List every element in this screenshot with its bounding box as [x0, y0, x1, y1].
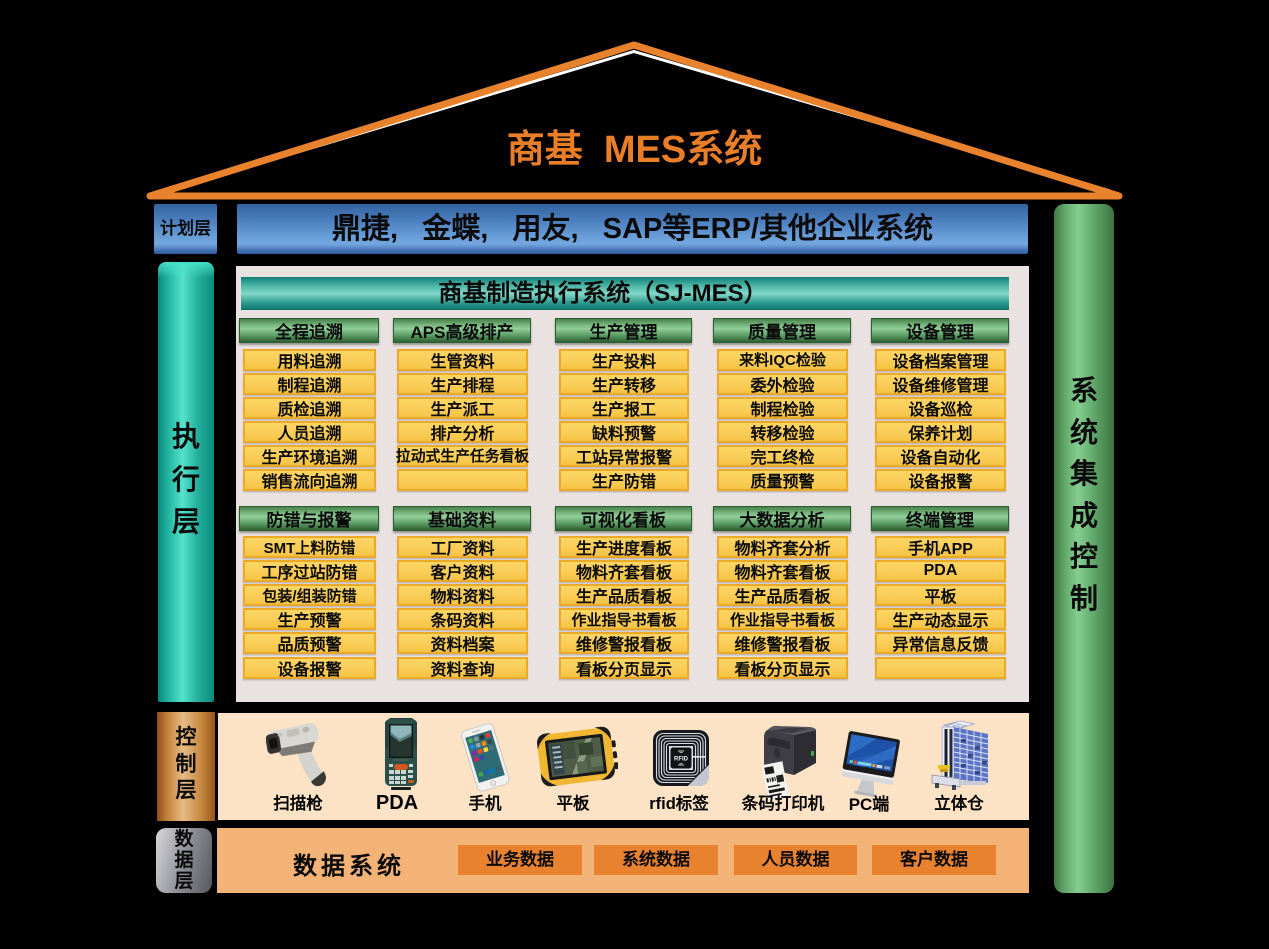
svg-text:RFID: RFID — [674, 757, 689, 763]
